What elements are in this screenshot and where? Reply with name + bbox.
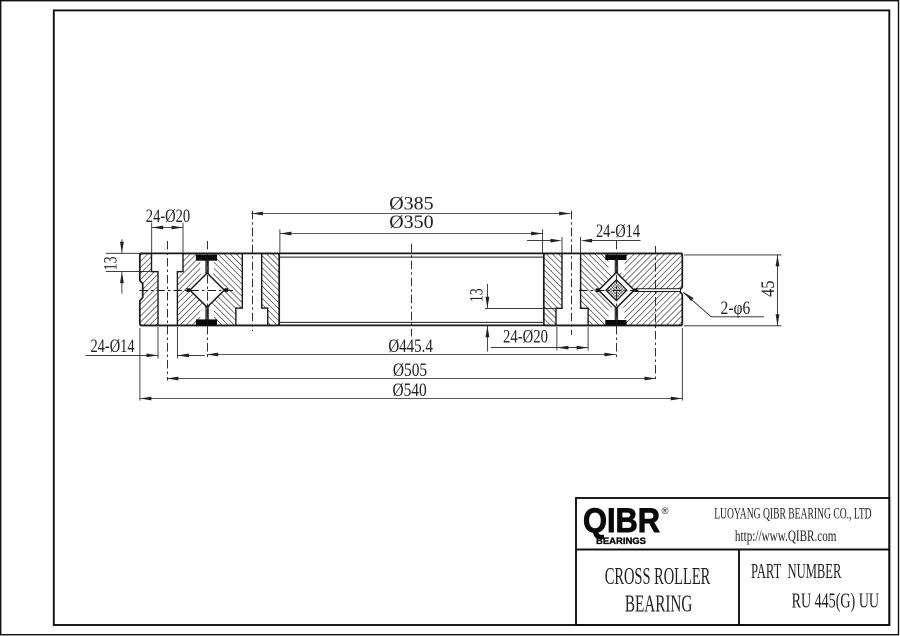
svg-text:Ø350: Ø350: [389, 212, 433, 232]
svg-text:2-φ6: 2-φ6: [721, 298, 751, 319]
svg-text:PART NUMBER: PART NUMBER: [751, 560, 842, 583]
svg-text:LUOYANG QIBR BEARING CO., LTD: LUOYANG QIBR BEARING CO., LTD: [714, 505, 871, 522]
svg-text:24-Ø20: 24-Ø20: [146, 205, 190, 226]
svg-text:BEARING: BEARING: [625, 591, 693, 617]
svg-text:QIBR: QIBR: [583, 502, 660, 540]
svg-text:13: 13: [465, 288, 487, 302]
svg-text:CROSS ROLLER: CROSS ROLLER: [605, 563, 711, 590]
svg-text:45: 45: [757, 280, 778, 297]
svg-text:®: ®: [662, 506, 669, 517]
svg-text:24-Ø20: 24-Ø20: [503, 326, 548, 347]
svg-text:Ø505: Ø505: [393, 359, 427, 380]
svg-text:Ø540: Ø540: [393, 380, 427, 401]
svg-text:13: 13: [99, 256, 121, 270]
svg-text:RU 445(G) UU: RU 445(G) UU: [792, 589, 880, 614]
svg-text:24-Ø14: 24-Ø14: [90, 335, 135, 356]
svg-text:BEARINGS: BEARINGS: [596, 536, 646, 546]
svg-text:24-Ø14: 24-Ø14: [596, 220, 641, 241]
svg-text:http://www.QIBR.com: http://www.QIBR.com: [735, 527, 837, 544]
svg-text:Ø445.4: Ø445.4: [388, 335, 433, 356]
